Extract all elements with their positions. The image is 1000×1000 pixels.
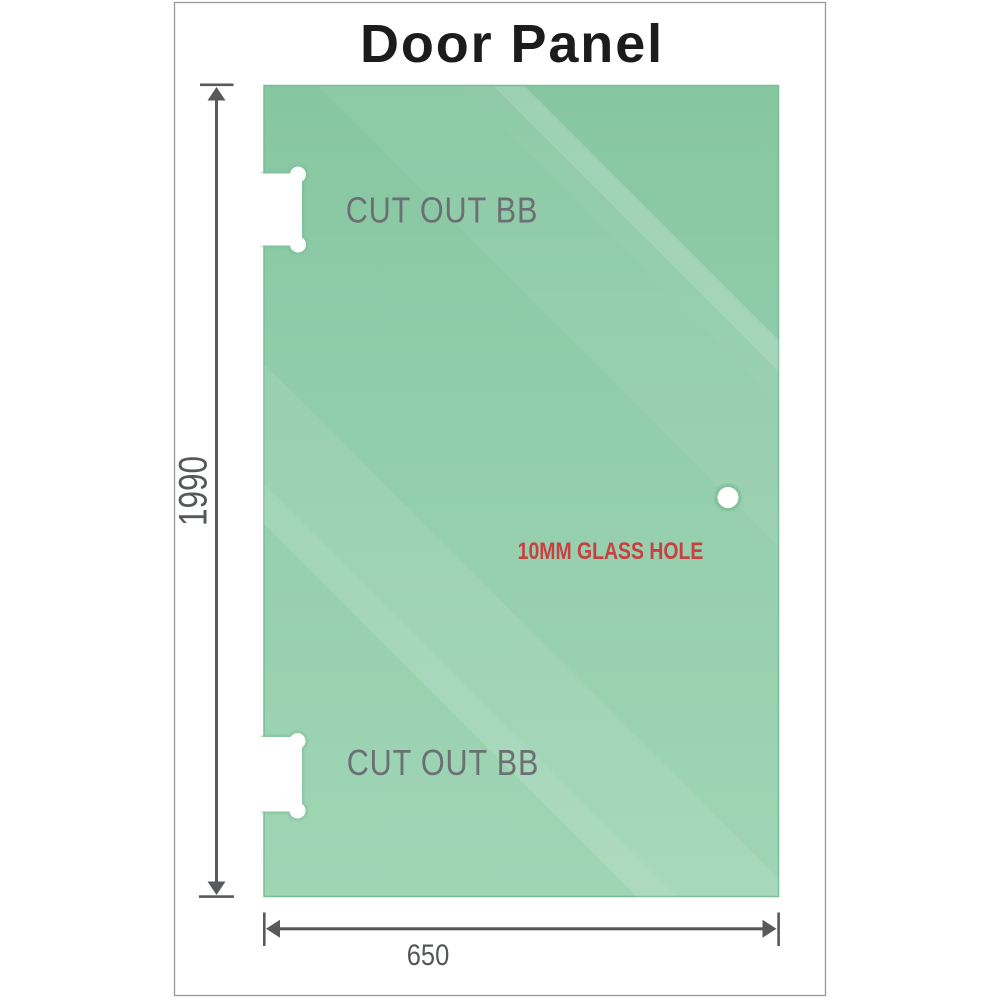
svg-text:Door Panel: Door Panel xyxy=(360,14,664,74)
svg-text:650: 650 xyxy=(407,938,450,971)
svg-text:CUT OUT BB: CUT OUT BB xyxy=(347,744,540,784)
svg-text:CUT OUT BB: CUT OUT BB xyxy=(346,191,539,231)
svg-text:10MM GLASS HOLE: 10MM GLASS HOLE xyxy=(518,537,704,564)
svg-text:1990: 1990 xyxy=(170,456,216,526)
